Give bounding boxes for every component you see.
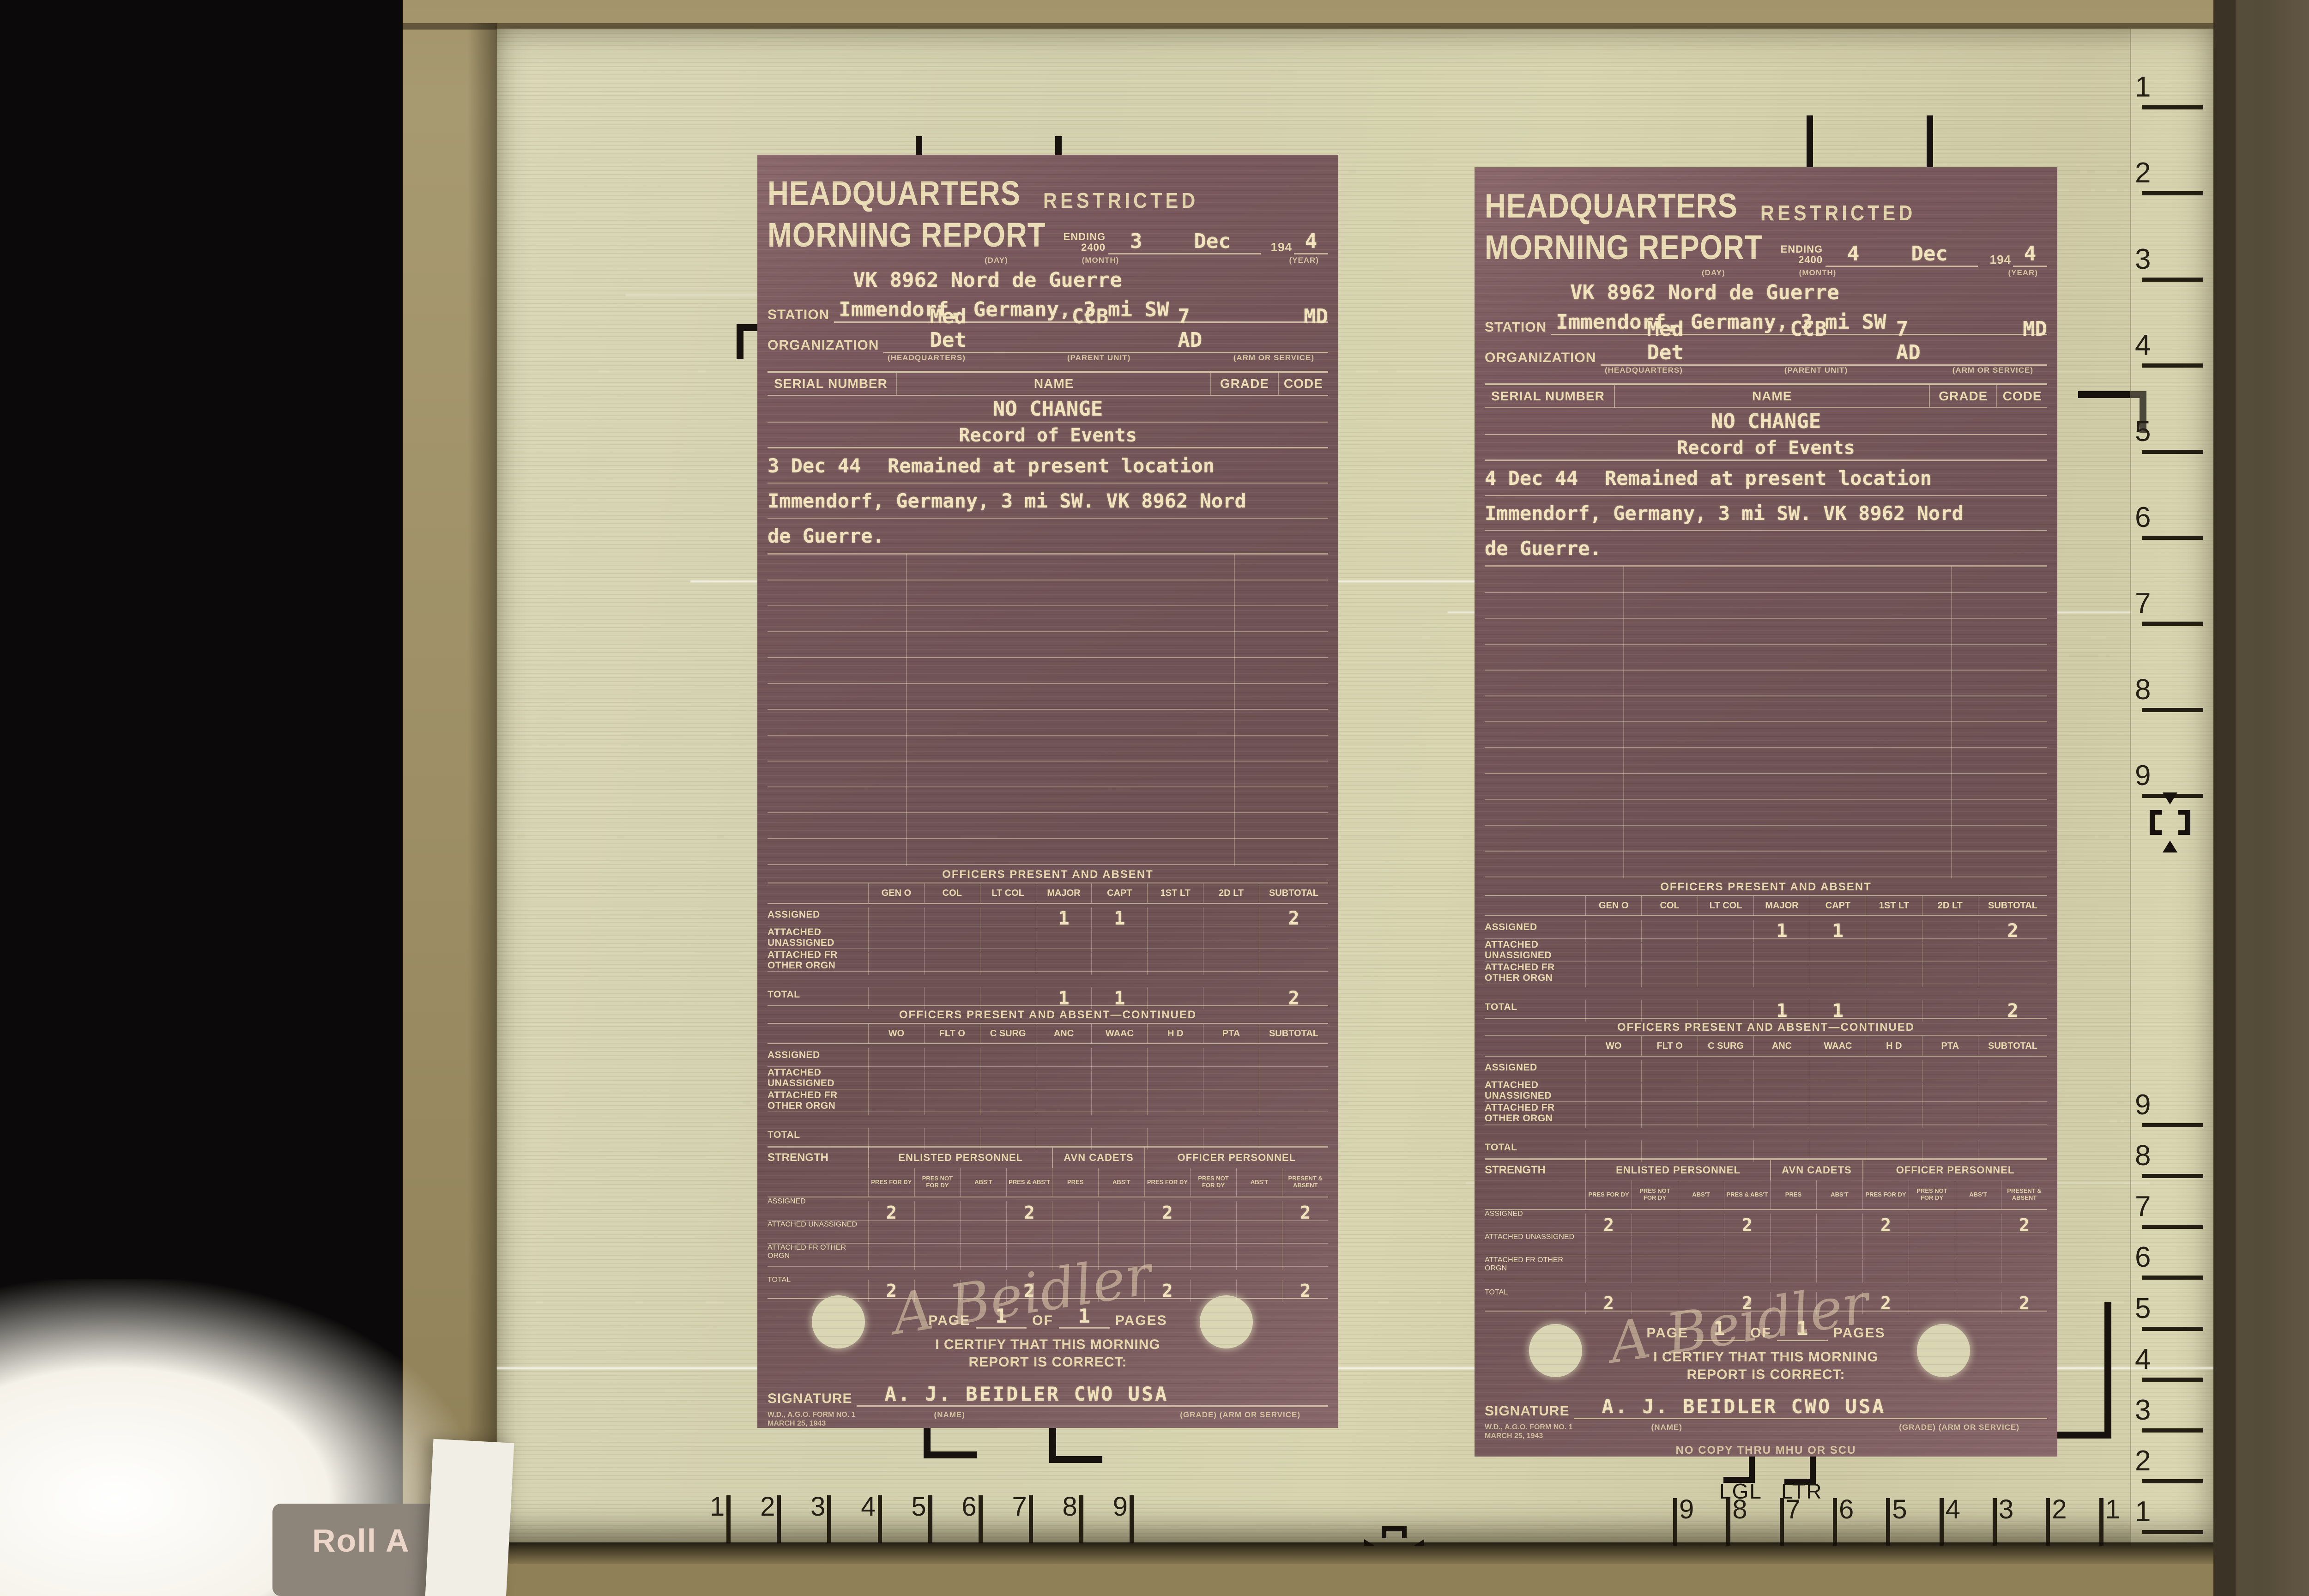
table-cell: [980, 1048, 1036, 1070]
table-cell: [924, 1128, 980, 1149]
table-cell: [1036, 1048, 1092, 1070]
table-cell: [1909, 1214, 1955, 1236]
table-cell: [960, 1280, 1006, 1302]
table-cell: 1: [1036, 907, 1092, 930]
page-total: 1: [1777, 1317, 1828, 1341]
ruler-tick: [726, 1495, 731, 1543]
roster-column-header: NAME: [896, 373, 1210, 395]
table-cell: [1036, 953, 1092, 975]
row-label: ASSIGNED: [768, 1044, 868, 1066]
table-cell: [1632, 1260, 1678, 1282]
table-cell: [1698, 1106, 1753, 1128]
ruler-number: 7: [2135, 1192, 2209, 1221]
column-header: PRES & ABS'T: [1006, 1168, 1052, 1197]
no-change-entry: NO CHANGE: [1485, 408, 2047, 435]
column-header: PRESENT & ABSENT: [1282, 1168, 1328, 1197]
event-text: Immendorf, Germany, 3 mi SW. VK 8962 Nor…: [768, 490, 1246, 512]
table-cell: [868, 907, 924, 930]
ruler-tick: [2142, 536, 2203, 540]
punch-hole: [1200, 1295, 1253, 1348]
table-cell: [1091, 1093, 1147, 1115]
enlisted-personnel-header: ENLISTED PERSONNEL: [868, 1148, 1052, 1168]
table-row: TOTAL 2222: [1485, 1288, 2047, 1312]
table-cell: [868, 987, 924, 1009]
row-label: ASSIGNED: [768, 1197, 868, 1220]
table-cell: [1810, 1140, 1866, 1162]
ruler-tick: [1993, 1498, 1997, 1546]
table-cell: [980, 953, 1036, 975]
row-label: ATTACHED UNASSIGNED: [1485, 1233, 1585, 1256]
ruler-number: 5: [2135, 1294, 2209, 1323]
ending-word: ENDING: [1064, 231, 1106, 242]
roster-header-row: SERIAL NUMBERNAMEGRADECODE: [768, 371, 1328, 396]
table-cell: [1724, 1237, 1770, 1259]
row-label: ATTACHED FR OTHER ORGN: [1485, 1102, 1585, 1124]
table-row: ATTACHED FR OTHER ORGN: [768, 1244, 1328, 1267]
column-header: H D: [1147, 1024, 1203, 1043]
table-cell: [1753, 1106, 1809, 1128]
ruler-tick: [2142, 1276, 2203, 1280]
ruler-mark: 8: [1726, 1496, 1747, 1546]
avn-cadets-header: AVN CADETS: [1052, 1148, 1144, 1168]
row-label: ASSIGNED: [1485, 916, 1585, 938]
legal-size-label: LGL: [1719, 1479, 1762, 1504]
ruler-mark: 4: [2135, 331, 2209, 368]
officers-table-header: GEN OCOLLT COLMAJORCAPT1ST LT2D LTSUBTOT…: [1485, 896, 2047, 916]
table-cell: [1816, 1292, 1862, 1314]
table-cell: [1585, 1237, 1632, 1259]
ruler-tick: [2142, 1174, 2203, 1178]
page-label: PAGE: [928, 1313, 970, 1329]
table-cell: [1052, 1247, 1098, 1270]
year-prefix: 194: [1271, 240, 1292, 254]
table-cell: [914, 1224, 961, 1247]
ending-label: ENDING 2400: [1781, 244, 1823, 265]
ruler-mark: 8: [1063, 1493, 1083, 1543]
table-cell: 1: [1810, 920, 1866, 942]
ruler-tick: [928, 1495, 932, 1543]
ruler-tick: [2142, 1327, 2203, 1331]
form-number: W.D., A.G.O. FORM NO. 1: [768, 1410, 856, 1419]
letter-size-label: LTR: [1781, 1479, 1823, 1504]
ruler-mark: 3: [2135, 1396, 2209, 1433]
table-cell: [1698, 1060, 1753, 1082]
column-header: PRES FOR DY: [1144, 1168, 1191, 1197]
table-cell: [1632, 1237, 1678, 1259]
signature-name: A. J. BEIDLER CWO USA: [857, 1383, 1328, 1407]
station-label: STATION: [768, 307, 829, 323]
strength-label: STRENGTH: [768, 1148, 868, 1168]
table-cell: [1147, 1070, 1203, 1093]
table-row: TOTAL 112: [768, 984, 1328, 1006]
ruler-mark: 8: [2135, 1142, 2209, 1178]
table-cell: [1147, 930, 1203, 952]
ruler-number: 2: [760, 1493, 775, 1520]
officers-table: GEN OCOLLT COLMAJORCAPT1ST LT2D LTSUBTOT…: [768, 883, 1328, 1006]
table-cell: [1955, 1292, 2001, 1314]
table-cell: 2: [1978, 1000, 2047, 1022]
ruler-number: 1: [2105, 1496, 2120, 1523]
table-row: ASSIGNED: [1485, 1057, 2047, 1079]
parent-unit-sublabel: (PARENT UNIT): [1784, 366, 1848, 378]
roster-column-header: SERIAL NUMBER: [768, 373, 896, 395]
ruler-mark: 7: [2135, 1192, 2209, 1229]
column-header: GEN O: [1585, 896, 1641, 915]
roster-column-header: CODE: [1996, 385, 2047, 407]
table-cell: [1641, 1083, 1697, 1105]
column-header: SUBTOTAL: [1259, 1024, 1328, 1043]
ruler-number: 2: [2052, 1496, 2067, 1523]
day-sublabel: (DAY): [985, 256, 1008, 265]
report-day: 3: [1108, 230, 1164, 254]
table-cell: [1698, 1083, 1753, 1105]
roster-column-header: NAME: [1614, 385, 1929, 407]
ruler-number: 9: [1679, 1496, 1694, 1523]
bottom-ruler-right: 9 8 7 6 5 4 3 2 1: [1673, 1496, 2120, 1546]
pages-label: PAGES: [1833, 1325, 1886, 1341]
table-cell: [1698, 965, 1753, 987]
officers-continued-header: WOFLT OC SURGANCWAACH DPTASUBTOTAL: [1485, 1036, 2047, 1057]
ruler-tick: [2142, 1428, 2203, 1433]
table-cell: [1585, 1106, 1641, 1128]
row-label: ASSIGNED: [768, 904, 868, 926]
column-header: PRES: [1770, 1180, 1816, 1209]
event-text: de Guerre.: [1485, 537, 1602, 560]
film-frame: HEADQUARTERS RESTRICTED MORNING REPORT E…: [496, 29, 2213, 1546]
arm-service-sublabel: (ARM OR SERVICE): [1952, 366, 2033, 378]
ruler-number: 7: [2135, 589, 2209, 618]
table-cell: [1091, 930, 1147, 952]
ruler-mark: 1: [710, 1493, 731, 1543]
table-cell: [1816, 1237, 1862, 1259]
table-cell: [980, 1070, 1036, 1093]
column-header: PRES NOT FOR DY: [914, 1168, 961, 1197]
column-header: SUBTOTAL: [1978, 896, 2047, 915]
ruler-number: 4: [2135, 1345, 2209, 1374]
table-row: TOTAL: [1485, 1137, 2047, 1159]
organization-label: ORGANIZATION: [768, 338, 879, 353]
table-cell: [1678, 1237, 1724, 1259]
name-sublabel: (NAME): [934, 1410, 965, 1420]
table-cell: [1866, 1140, 1922, 1162]
headquarters-sublabel: (HEADQUARTERS): [1605, 366, 1683, 378]
table-cell: 2: [1144, 1280, 1191, 1302]
table-row: TOTAL 2222: [768, 1276, 1328, 1299]
form-date: MARCH 25, 1943: [768, 1419, 856, 1428]
headquarters-sublabel: (HEADQUARTERS): [888, 353, 966, 365]
row-label: TOTAL: [1485, 1137, 1585, 1158]
table-cell: [1147, 987, 1203, 1009]
signature-name: A. J. BEIDLER CWO USA: [1574, 1395, 2047, 1419]
table-cell: [1866, 943, 1922, 965]
strength-group-header: STRENGTH ENLISTED PERSONNEL AVN CADETS O…: [768, 1147, 1328, 1168]
officers-continued-table: WOFLT OC SURGANCWAACH DPTASUBTOTAL ASSIG…: [1485, 1036, 2047, 1159]
ruler-mark: 1: [2099, 1496, 2120, 1546]
table-cell: [1641, 1140, 1697, 1162]
column-header: C SURG: [980, 1024, 1036, 1043]
table-cell: 2: [1282, 1280, 1328, 1302]
ruler-tick: [2142, 191, 2203, 195]
column-header: PTA: [1922, 1036, 1978, 1056]
ruler-mark: 3: [1993, 1496, 2013, 1546]
table-cell: [2001, 1260, 2047, 1282]
ruler-mark: 3: [810, 1493, 831, 1543]
table-cell: [924, 1093, 980, 1115]
ruler-mark: 9: [1673, 1496, 1694, 1546]
punch-hole: [1917, 1324, 1970, 1377]
column-header: WAAC: [1810, 1036, 1866, 1056]
ruler-number: 7: [1012, 1493, 1027, 1520]
table-row: ASSIGNED: [768, 1044, 1328, 1067]
table-cell: [1955, 1260, 2001, 1282]
table-row: ATTACHED FR OTHER ORGN: [1485, 1102, 2047, 1124]
table-cell: [924, 1070, 980, 1093]
table-row: ATTACHED UNASSIGNED: [1485, 1233, 2047, 1256]
table-row: ATTACHED UNASSIGNED: [768, 926, 1328, 949]
machine-right-edge: [2213, 0, 2236, 1596]
ruler-tick: [1673, 1498, 1677, 1546]
table-cell: [1236, 1224, 1282, 1247]
avn-cadets-header: AVN CADETS: [1770, 1160, 1862, 1180]
table-cell: [1203, 987, 1259, 1009]
table-cell: [1862, 1237, 1909, 1259]
ruler-number: 3: [2135, 245, 2209, 274]
table-cell: [1978, 1060, 2047, 1082]
ruler-tick: [2142, 450, 2203, 454]
strength-subheader-row: PRES FOR DYPRES NOT FOR DYABS'TPRES & AB…: [768, 1168, 1328, 1197]
form-number: W.D., A.G.O. FORM NO. 1: [1485, 1423, 1573, 1432]
org-headquarters-value: Med Det: [925, 305, 988, 352]
column-header: CAPT: [1810, 896, 1866, 915]
ruler-mark: 1: [2135, 1498, 2209, 1534]
roster-column-header: CODE: [1278, 373, 1328, 395]
table-cell: [1753, 965, 1809, 987]
table-cell: [1098, 1224, 1144, 1247]
ruler-number: 9: [2135, 762, 2209, 790]
column-header: ABS'T: [1236, 1168, 1282, 1197]
table-cell: [1753, 943, 1809, 965]
table-cell: [1978, 1083, 2047, 1105]
ruler-number: 1: [2135, 1498, 2209, 1526]
ruler-mark: 7: [1012, 1493, 1033, 1543]
ruler-number: 3: [810, 1493, 825, 1520]
row-label: ASSIGNED: [1485, 1057, 1585, 1079]
year-sublabel: (YEAR): [2008, 268, 2038, 278]
table-cell: [1698, 943, 1753, 965]
signature-label: SIGNATURE: [768, 1391, 852, 1407]
classification-stamp: RESTRICTED: [1043, 188, 1199, 213]
column-header: CAPT: [1091, 883, 1147, 903]
ruler-number: 9: [2135, 1091, 2209, 1119]
table-cell: [1978, 1106, 2047, 1128]
page-number: 1: [1694, 1317, 1745, 1341]
ruler-mark: 2: [2046, 1496, 2067, 1546]
org-arm-value: MD: [2018, 317, 2047, 364]
ruler-number: 5: [2135, 417, 2209, 446]
table-cell: [1190, 1247, 1236, 1270]
table-cell: [868, 953, 924, 975]
table-cell: [1091, 1048, 1147, 1070]
table-cell: [1006, 1224, 1052, 1247]
arm-service-sublabel: (ARM OR SERVICE): [1233, 353, 1314, 365]
officers-table: GEN OCOLLT COLMAJORCAPT1ST LT2D LTSUBTOT…: [1485, 896, 2047, 1019]
ruler-number: 8: [1063, 1493, 1077, 1520]
ruler-tick: [2142, 708, 2203, 712]
report-day: 4: [1825, 242, 1881, 267]
table-cell: [1698, 1140, 1753, 1162]
roster-column-header: GRADE: [1210, 373, 1278, 395]
ruler-mark: 9: [1113, 1493, 1134, 1543]
column-header: PRESENT & ABSENT: [2001, 1180, 2047, 1209]
ruler-number: 8: [2135, 1142, 2209, 1170]
ruler-tick: [1780, 1498, 1784, 1546]
table-cell: [1922, 1106, 1978, 1128]
table-cell: [1770, 1214, 1816, 1236]
row-label: ATTACHED UNASSIGNED: [1485, 939, 1585, 961]
officer-personnel-header: OFFICER PERSONNEL: [1144, 1148, 1328, 1168]
column-header: C SURG: [1698, 1036, 1753, 1056]
ruler-mark: 9: [2135, 1091, 2209, 1127]
ruler-tick: [2046, 1498, 2050, 1546]
ruler-tick: [777, 1495, 781, 1543]
officers-table-title: OFFICERS PRESENT AND ABSENT: [768, 866, 1328, 883]
column-header: 1ST LT: [1147, 883, 1203, 903]
officers-continued-header: WOFLT OC SURGANCWAACH DPTASUBTOTAL: [768, 1024, 1328, 1044]
form-id: W.D., A.G.O. FORM NO. 1 MARCH 25, 1943: [768, 1410, 856, 1428]
ruler-number: 8: [2135, 676, 2209, 704]
column-header: LT COL: [980, 883, 1036, 903]
column-header: ABS'T: [1098, 1168, 1144, 1197]
table-cell: [1810, 1106, 1866, 1128]
ruler-mark: 4: [861, 1493, 882, 1543]
ruler-mark: 5: [1886, 1496, 1907, 1546]
table-row: TOTAL: [768, 1124, 1328, 1147]
table-cell: [1922, 943, 1978, 965]
table-cell: [1203, 953, 1259, 975]
table-cell: 2: [1724, 1292, 1770, 1314]
row-label: TOTAL: [768, 1124, 868, 1146]
table-cell: 2: [2001, 1214, 2047, 1236]
table-cell: [1585, 965, 1641, 987]
table-cell: [1770, 1237, 1816, 1259]
table-cell: [1091, 1128, 1147, 1149]
table-cell: 2: [868, 1280, 914, 1302]
table-cell: [1698, 920, 1753, 942]
punch-hole: [812, 1295, 865, 1348]
ruler-mark: 2: [2135, 159, 2209, 195]
table-cell: [1236, 1247, 1282, 1270]
screen-bottom-shadow: [403, 1542, 2213, 1564]
table-cell: 1: [1753, 1000, 1809, 1022]
table-cell: [1866, 920, 1922, 942]
ruler-tick: [878, 1495, 882, 1543]
row-label: ATTACHED FR OTHER ORGN: [768, 1089, 868, 1112]
table-cell: [1203, 930, 1259, 952]
table-cell: [1236, 1280, 1282, 1302]
ruler-mark: 6: [1833, 1496, 1854, 1546]
table-row: ATTACHED UNASSIGNED: [768, 1221, 1328, 1244]
table-cell: [914, 1201, 961, 1224]
table-cell: [868, 1224, 914, 1247]
column-header: WO: [1585, 1036, 1641, 1056]
table-cell: [1922, 1140, 1978, 1162]
table-cell: [1641, 1060, 1697, 1082]
column-header: LT COL: [1698, 896, 1753, 915]
microfilm-reader-photo: HEADQUARTERS RESTRICTED MORNING REPORT E…: [0, 0, 2309, 1596]
table-cell: 2: [1006, 1201, 1052, 1224]
strength-label: STRENGTH: [1485, 1160, 1585, 1180]
table-cell: [1147, 1048, 1203, 1070]
event-text: Immendorf, Germany, 3 mi SW. VK 8962 Nor…: [1485, 502, 1964, 525]
table-row: ASSIGNED 2222: [768, 1197, 1328, 1221]
table-cell: [1753, 1140, 1809, 1162]
column-header: PTA: [1203, 1024, 1259, 1043]
table-cell: [980, 987, 1036, 1009]
table-cell: 1: [1091, 907, 1147, 930]
officers-continued-table: WOFLT OC SURGANCWAACH DPTASUBTOTAL ASSIG…: [768, 1024, 1328, 1147]
table-row: ATTACHED FR OTHER ORGN: [768, 1089, 1328, 1112]
table-cell: [1641, 1106, 1697, 1128]
table-cell: [1006, 1247, 1052, 1270]
table-cell: [1098, 1201, 1144, 1224]
document-title: HEADQUARTERS: [1485, 186, 1738, 225]
table-cell: [1866, 1060, 1922, 1082]
ruler-number: 3: [2135, 1396, 2209, 1425]
column-header: ABS'T: [1955, 1180, 2001, 1209]
ruler-mark: 5: [2135, 417, 2209, 454]
row-label: TOTAL: [1485, 1288, 1585, 1311]
ruler-number: 5: [1892, 1496, 1907, 1523]
table-cell: [1259, 1093, 1328, 1115]
table-cell: [1978, 965, 2047, 987]
table-row: ASSIGNED 112: [768, 904, 1328, 926]
code-line: VK 8962 Nord de Guerre: [1570, 281, 2047, 307]
column-header: COL: [1641, 896, 1697, 915]
roster-column-header: GRADE: [1929, 385, 1996, 407]
table-cell: 1: [1753, 920, 1809, 942]
table-cell: [1816, 1260, 1862, 1282]
org-parent-unit-value: 7 AD: [1173, 305, 1211, 352]
ruler-tick: [1079, 1495, 1083, 1543]
table-cell: [1259, 1070, 1328, 1093]
event-text: Remained at present location: [888, 454, 1215, 477]
signature-label: SIGNATURE: [1485, 1403, 1569, 1419]
roll-label-text: Roll A: [312, 1522, 410, 1559]
roster-column-header: SERIAL NUMBER: [1485, 385, 1614, 407]
table-cell: [1259, 1128, 1328, 1149]
row-label: ASSIGNED: [1485, 1210, 1585, 1233]
table-cell: [980, 1128, 1036, 1149]
table-cell: [1585, 1000, 1641, 1022]
ruler-mark: 7: [1780, 1496, 1801, 1546]
event-date: 4 Dec 44: [1485, 467, 1605, 490]
table-cell: [924, 987, 980, 1009]
table-cell: 2: [1006, 1280, 1052, 1302]
form-date: MARCH 25, 1943: [1485, 1432, 1573, 1440]
ruler-number: 6: [2135, 1243, 2209, 1272]
table-cell: [1678, 1214, 1724, 1236]
day-sublabel: (DAY): [1702, 268, 1725, 278]
column-header: PRES FOR DY: [1862, 1180, 1909, 1209]
report-year: 4: [1294, 230, 1328, 254]
table-cell: [1922, 1083, 1978, 1105]
table-cell: [1810, 1083, 1866, 1105]
table-cell: [1147, 1128, 1203, 1149]
table-row: ASSIGNED 2222: [1485, 1210, 2047, 1233]
table-cell: [1641, 1000, 1697, 1022]
column-header: ABS'T: [1678, 1180, 1724, 1209]
ruler-number: 9: [1113, 1493, 1128, 1520]
